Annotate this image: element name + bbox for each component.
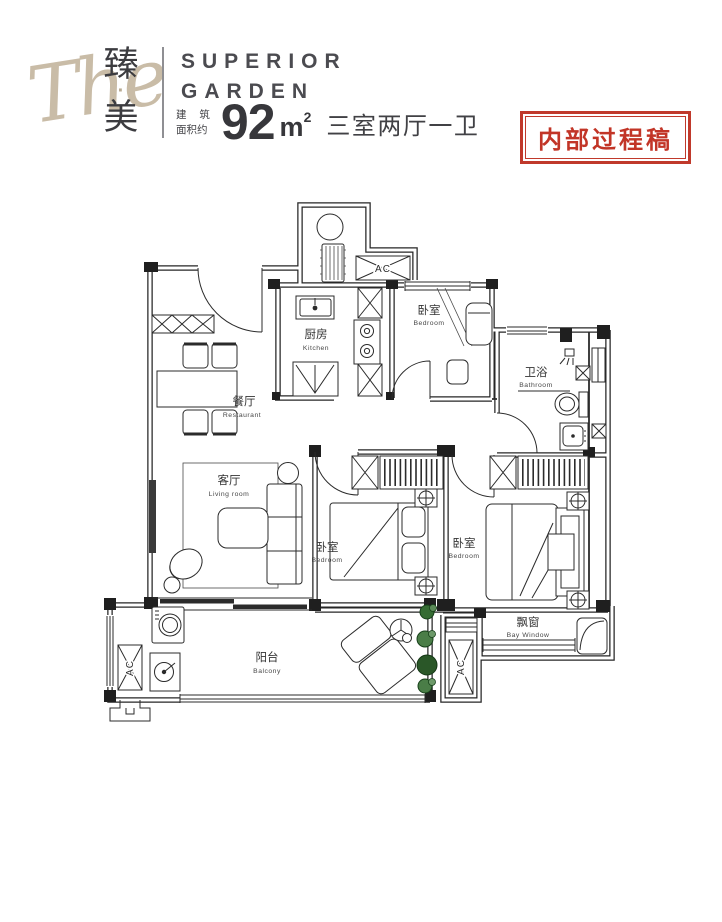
balcony-room: AC 阳台 Balcony: [118, 605, 437, 697]
nightstand-lamp-icon: [415, 489, 437, 507]
utility-sink-icon: [150, 653, 180, 691]
ac-label-top: AC: [375, 264, 391, 275]
tv-icon: [149, 480, 156, 553]
kitchen-sink-icon: [296, 296, 334, 319]
pedestal-step: [110, 700, 150, 721]
bathroom-label-cn: 卫浴: [525, 366, 548, 379]
dining-chair: [183, 410, 208, 435]
bedroom-top-label-en: Bedroom: [413, 320, 444, 327]
ac-unit-top: AC: [356, 256, 410, 280]
dining-label-cn: 餐厅: [233, 394, 256, 408]
double-bed-master: [486, 504, 584, 600]
nightstand-lamp-icon: [567, 591, 589, 609]
vanity-sink-icon: [560, 423, 588, 450]
bay-window-glass: [483, 638, 575, 652]
living-label-cn: 客厅: [218, 473, 241, 487]
nightstand-lamp-icon: [415, 577, 437, 595]
bathroom-door: [497, 413, 537, 453]
plants-icons: [417, 605, 437, 694]
dining-label-en: Restaurant: [223, 412, 261, 419]
ac-unit-balcony-left: AC: [118, 645, 142, 690]
toilet-icon: [555, 392, 588, 417]
desk-icon: [447, 360, 468, 384]
wall-cabinet-icon: [152, 315, 214, 333]
shower-head-icon: [560, 349, 574, 365]
bedroom-master-room: 卧室 Bedroom: [448, 456, 589, 609]
floorplan-page: The 臻 · 美 SUPERIOR GARDEN 建 筑 面积约 92 m2 …: [0, 0, 722, 922]
bedroom-master-label-cn: 卧室: [453, 536, 476, 550]
balcony-west-window: [105, 615, 115, 687]
bay-window-label-en: Bay Window: [507, 632, 550, 639]
living-label-en: Living room: [209, 491, 250, 498]
floor-plan-svg: AC 餐厅 Restaurant: [0, 0, 722, 922]
ac-label-left: AC: [125, 660, 136, 676]
bathroom-room: 卫浴 Bathroom: [518, 348, 606, 450]
pouf: [164, 577, 180, 593]
balcony-label-en: Balcony: [253, 668, 281, 675]
wardrobe-middle: [352, 456, 443, 489]
bathroom-label-en: Bathroom: [519, 382, 552, 389]
ac-platform: AC: [446, 618, 477, 694]
bedroom-middle-label-en: Bedroom: [311, 557, 342, 564]
bedroom-top-room: 卧室 Bedroom: [413, 288, 492, 384]
radiator-icon: [320, 244, 346, 282]
living-room: 客厅 Living room: [149, 463, 302, 594]
bedroom-master-door: [452, 455, 494, 497]
sofa: [267, 484, 302, 584]
water-heater-icon: [317, 214, 343, 240]
wardrobe-master: [490, 456, 588, 489]
bedroom-top-door: [392, 361, 430, 399]
bedroom-master-label-en: Bedroom: [448, 553, 479, 560]
kitchen-label-en: Kitchen: [303, 345, 329, 352]
bay-window-area: 飘窗 Bay Window: [507, 615, 607, 654]
kitchen-label-cn: 厨房: [305, 328, 328, 341]
bedroom-top-label-cn: 卧室: [418, 303, 441, 317]
kitchen-room: 厨房 Kitchen: [293, 288, 382, 396]
single-bed-icon: [466, 303, 492, 345]
fridge-icon: [293, 362, 338, 396]
bedroom-middle-room: 卧室 Bedroom: [311, 456, 443, 595]
dining-chair: [183, 343, 208, 368]
floor-drain-icon: [576, 366, 590, 380]
bathroom-window: [506, 326, 548, 335]
bay-chair-icon: [577, 618, 607, 654]
washing-machine-icon: [152, 607, 184, 643]
nightstand-lamp-icon: [567, 492, 589, 510]
bay-window-label-cn: 飘窗: [517, 615, 540, 629]
ac-label-platform: AC: [456, 659, 467, 675]
balcony-south-window: [180, 693, 425, 703]
stove-icon: [354, 320, 380, 364]
dining-room: 餐厅 Restaurant: [152, 315, 261, 435]
dining-table: [157, 371, 237, 407]
double-bed-middle: [330, 503, 428, 580]
side-table: [278, 463, 299, 484]
pipe-shaft: [592, 348, 606, 438]
bedroom-middle-label-cn: 卧室: [316, 540, 339, 554]
dining-chair: [212, 343, 237, 368]
balcony-label-cn: 阳台: [256, 650, 279, 664]
coffee-table: [218, 508, 268, 548]
